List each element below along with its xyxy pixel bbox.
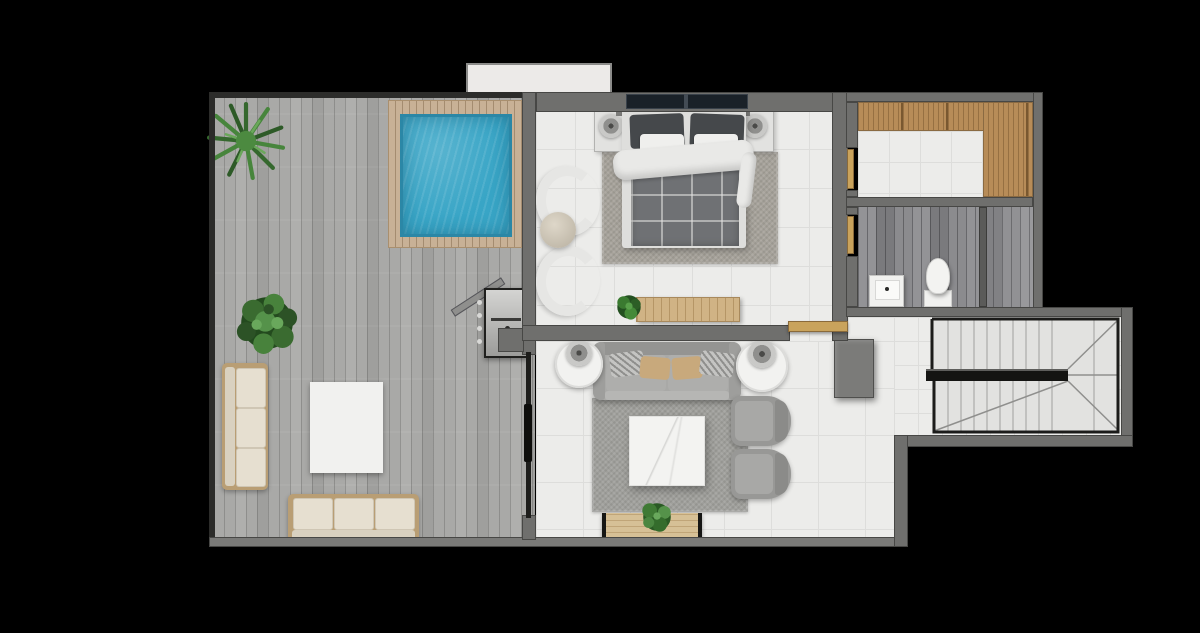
seat-cushion xyxy=(236,448,266,487)
leafy-plant xyxy=(224,280,310,366)
bench-leg-left xyxy=(602,513,606,539)
bench-leg-right xyxy=(698,513,702,539)
toilet-bowl xyxy=(926,258,950,294)
terrace-bedroom-wall xyxy=(522,92,536,355)
side-table-lamp-right xyxy=(748,340,776,368)
bedroom-console xyxy=(636,297,740,322)
spiky-plant xyxy=(204,99,288,183)
bathroom-sink xyxy=(869,275,904,307)
nightstand-lamp-left xyxy=(599,114,623,138)
closet-right-wall xyxy=(1033,92,1043,317)
staircase xyxy=(908,317,1121,435)
balcony-slab xyxy=(466,63,612,95)
sliding-door-handle xyxy=(524,404,532,462)
stair-right-wall xyxy=(1121,307,1133,447)
terrace-wall-left xyxy=(209,92,215,547)
pool xyxy=(400,114,512,237)
knob xyxy=(477,313,482,318)
terrace-living-wall-stub xyxy=(522,515,536,540)
armchair-bottom xyxy=(731,449,791,499)
sink-drain xyxy=(885,287,889,291)
coffee-table xyxy=(629,416,705,486)
window-mullion xyxy=(684,94,688,109)
round-pouf xyxy=(540,212,576,248)
bedroom-window xyxy=(626,94,748,109)
bench-plant xyxy=(634,494,680,540)
floorplan-scene xyxy=(0,0,1200,633)
closet-floor xyxy=(858,131,983,197)
knob xyxy=(477,339,482,344)
armchair-back xyxy=(775,453,788,495)
armchair-top xyxy=(731,396,791,446)
gray-cabinet xyxy=(834,339,874,398)
outdoor-white-mat xyxy=(310,382,383,473)
throw-pillow-pattern-right xyxy=(699,350,736,378)
closet-left-wall-lower xyxy=(846,190,858,197)
bath-left-wall-upper xyxy=(846,207,858,215)
plaid-blanket xyxy=(631,168,739,246)
closet-left-wall-upper xyxy=(846,102,858,148)
bathroom-open-door xyxy=(847,216,854,254)
sofa-front-edge xyxy=(605,391,729,400)
divider-wall-terrace-stub xyxy=(498,328,524,352)
outdoor-sofa-left xyxy=(222,363,268,490)
closet-bath-wall xyxy=(846,197,1033,207)
bath-bottom-stair-top-wall xyxy=(846,307,1133,317)
shower-partition xyxy=(979,207,987,307)
console-plant xyxy=(611,289,647,325)
living-hall-patch-floor xyxy=(848,317,894,341)
side-table-lamp-left xyxy=(566,340,592,366)
bedroom-living-divider-wall xyxy=(522,325,790,341)
nightstand-lamp-right xyxy=(743,114,767,138)
knob xyxy=(477,300,482,305)
seat-cushion xyxy=(334,498,374,530)
seat-cushion xyxy=(236,368,266,408)
bottom-wall xyxy=(209,537,908,547)
grill-knobs xyxy=(477,300,483,352)
armchair-seat xyxy=(735,454,773,494)
grill-handle xyxy=(491,318,521,321)
living-right-wall xyxy=(894,435,908,547)
bath-left-wall-lower xyxy=(846,256,858,307)
closet-top-wall xyxy=(846,92,1043,102)
throw-pillow-tan-left xyxy=(639,356,671,381)
wardrobe-right xyxy=(983,102,1033,197)
sofa-back-cushion xyxy=(225,367,235,486)
terrace-wall-top xyxy=(209,92,536,98)
seat-cushion xyxy=(236,408,266,448)
seat-cushion xyxy=(375,498,415,530)
seat-cushion xyxy=(293,498,333,530)
armchair-back xyxy=(775,400,788,442)
stair-bottom-wall xyxy=(894,435,1133,447)
closet-open-door xyxy=(847,149,854,189)
bedroom-living-open-door xyxy=(788,321,848,332)
knob xyxy=(477,326,482,331)
armchair-seat xyxy=(735,401,773,441)
shower-area-tint xyxy=(987,207,1033,307)
throw-pillow-tan-right xyxy=(671,356,703,381)
